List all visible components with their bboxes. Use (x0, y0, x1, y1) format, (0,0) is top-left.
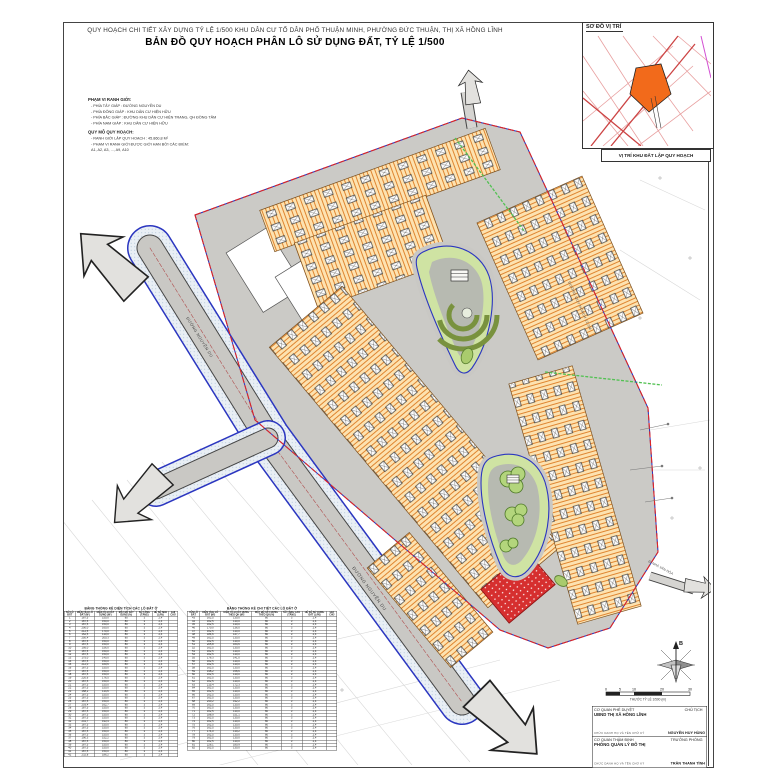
table-row: 82162,5130,08032,4 (187, 747, 337, 750)
inset-caption: VỊ TRÍ KHU ĐẤT LẬP QUY HOẠCH (601, 149, 711, 162)
micro-labels: CHỨC DANH HỌ VÀ TÊN CHỮ KÝ (594, 763, 644, 766)
legend-item: - PHÍA NAM GIÁP : KHU DÂN CƯ HIỆN HỮU (91, 121, 328, 126)
title-block-row-review: CƠ QUAN THẨM ĐỊNH PHÒNG QUẢN LÝ ĐÔ THỊ T… (593, 737, 707, 767)
legend-item: - PHÍA TÂY GIÁP : ĐƯỜNG NGUYỄN DU (91, 104, 328, 109)
sheet-title-line2: BẢN ĐỒ QUY HOẠCH PHÂN LÔ SỬ DỤNG ĐẤT, TỶ… (80, 37, 510, 48)
legend-item: - RANH GIỚI LẬP QUY HOẠCH : 45.860,8 M² (91, 136, 328, 141)
lot-table-2: BẢNG THỐNG KÊ CHI TIẾT CÁC LÔ ĐẤT Ở TÊN … (187, 607, 337, 770)
legend-item: - PHÍA ĐÔNG GIÁP : KHU DÂN CƯ HIỆN HỮU (91, 109, 328, 114)
micro-labels: CHỨC DANH HỌ VÀ TÊN CHỮ KÝ (594, 732, 644, 735)
location-inset-map (583, 23, 711, 146)
org-name: UBND THỊ XÃ HỒNG LĨNH (594, 713, 664, 718)
legend-item: - PHẠM VI RANH GIỚI ĐƯỢC GIỚI HẠN BỞI CÁ… (91, 142, 328, 147)
legend-boundary-title: PHẠM VI RANH GIỚI: (88, 97, 328, 102)
table-title: BẢNG THỐNG KÊ DIỆN TÍCH CÁC LÔ ĐẤT Ở (64, 607, 178, 611)
sheet-title-line1: QUY HOẠCH CHI TIẾT XÂY DỰNG TỶ LỆ 1/500 … (80, 27, 510, 34)
signer-name: TRẦN THANH TÌNH (671, 761, 705, 766)
inset-site-highlight (630, 64, 671, 112)
table-row: 42232,8186,28032,4 (64, 754, 178, 757)
sheet-header: QUY HOẠCH CHI TIẾT XÂY DỰNG TỶ LỆ 1/500 … (80, 27, 510, 48)
title-block: CƠ QUAN PHÊ DUYỆT UBND THỊ XÃ HỒNG LĨNH … (592, 706, 706, 767)
signer-role: CHỦ TỊCH (685, 708, 703, 713)
signer-role: TRƯỞNG PHÒNG (671, 738, 703, 743)
lot-statistics-table-2: TÊN LÔ ĐẤTDIỆN TÍCH LÔ ĐẤT (M²)DIỆN TÍCH… (187, 611, 337, 750)
legend-item: - PHÍA BẮC GIÁP : ĐƯỜNG KHU DÂN CƯ HIỆN … (91, 115, 328, 120)
lot-table-1: BẢNG THỐNG KÊ DIỆN TÍCH CÁC LÔ ĐẤT Ở SỐ … (64, 607, 184, 770)
inset-title: SƠ ĐỒ VỊ TRÍ (586, 24, 623, 32)
table-title: BẢNG THỐNG KÊ CHI TIẾT CÁC LÔ ĐẤT Ở (187, 607, 337, 611)
legend: PHẠM VI RANH GIỚI: - PHÍA TÂY GIÁP : ĐƯỜ… (88, 97, 328, 167)
location-inset: SƠ ĐỒ VỊ TRÍ (582, 22, 714, 149)
plan-sheet: ĐƯỜNG NGUYỄN DU ĐƯỜNG NGUYỄN DU ĐƯỜNG QU… (0, 0, 763, 770)
org-name: PHÒNG QUẢN LÝ ĐÔ THỊ (594, 743, 664, 748)
title-block-row-approve: CƠ QUAN PHÊ DUYỆT UBND THỊ XÃ HỒNG LĨNH … (593, 707, 707, 737)
legend-item: A1, A2, A3, ..., A9, A10 (91, 148, 328, 153)
signer-name: NGUYỄN HUY HÙNG (668, 731, 705, 736)
legend-scope-title: QUY MÔ QUY HOẠCH: (88, 130, 328, 135)
lot-statistics-table-1: SỐ LÔ ĐẤTDIỆN TÍCH LÔ ĐẤT (M²)DIỆN TÍCH … (64, 611, 178, 757)
